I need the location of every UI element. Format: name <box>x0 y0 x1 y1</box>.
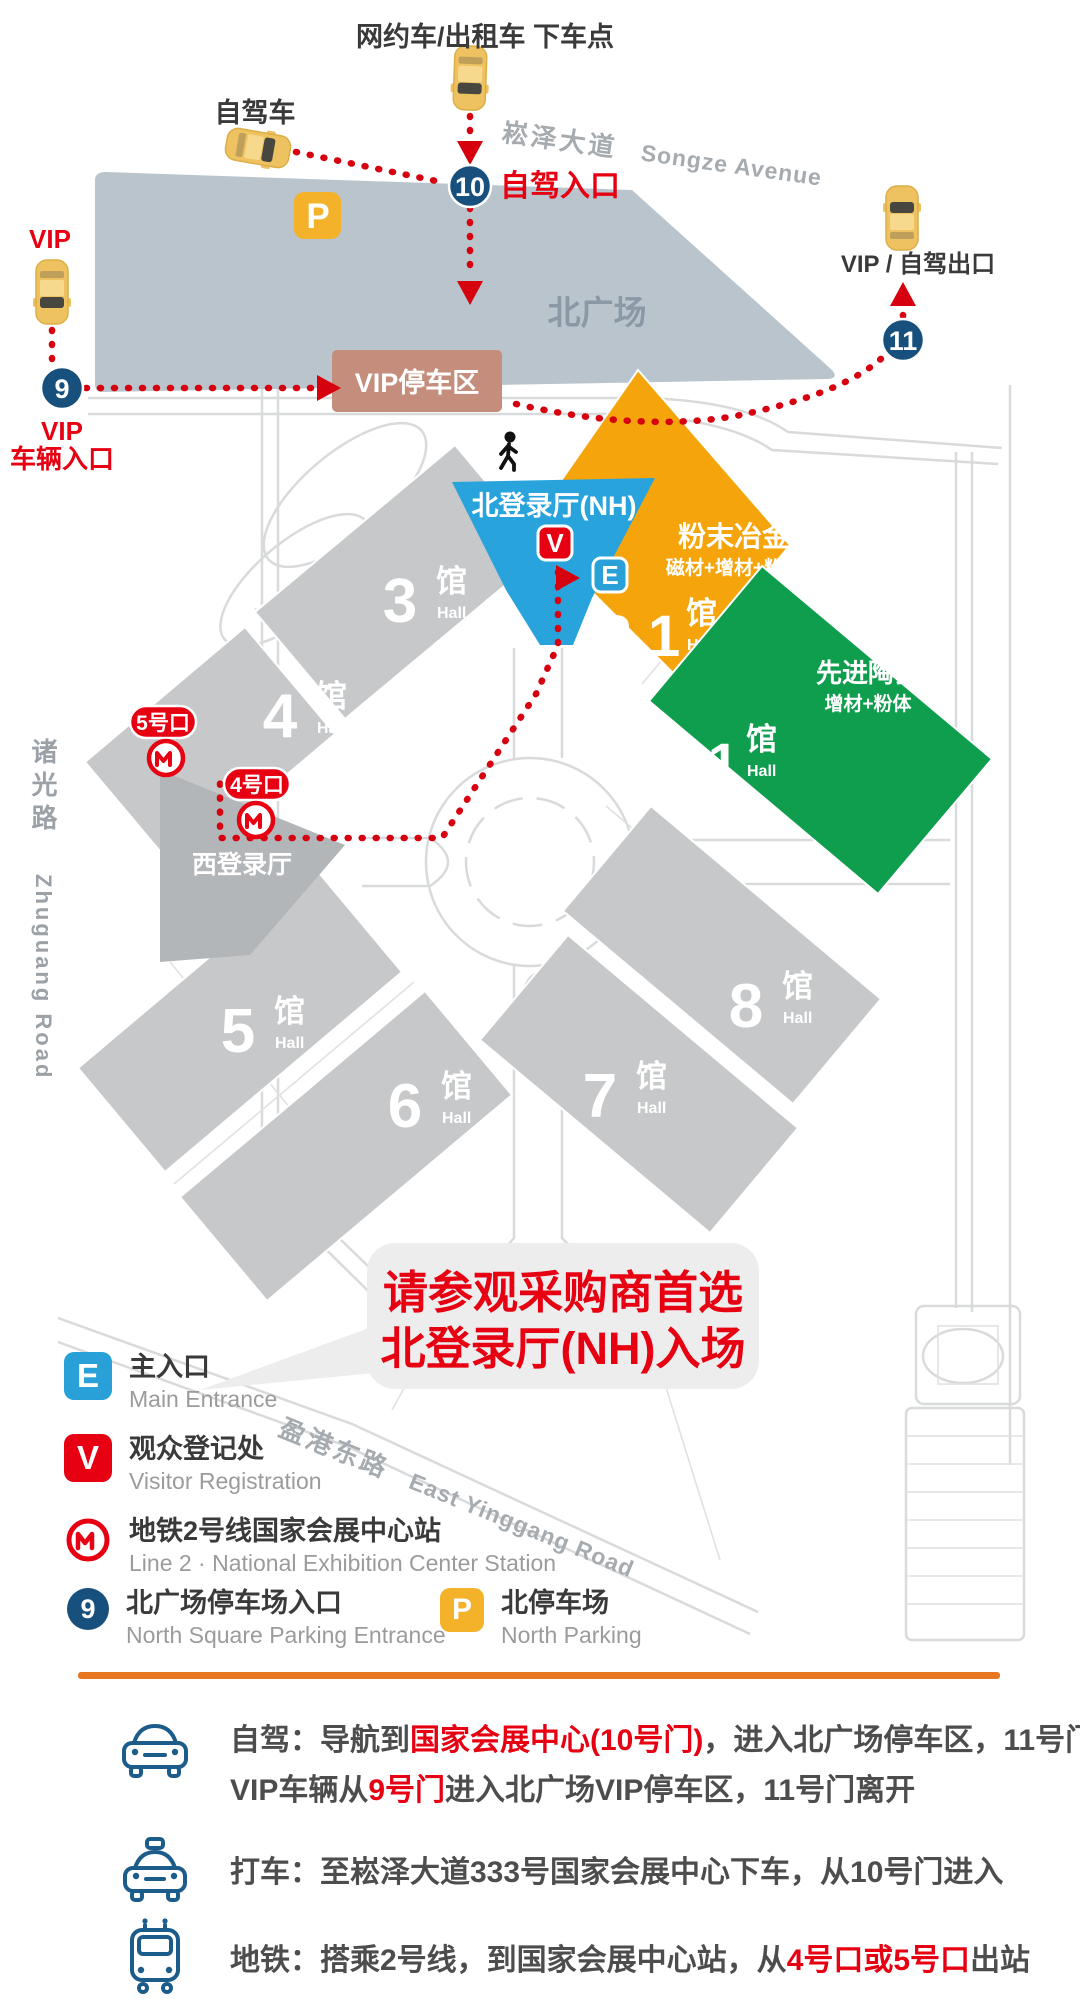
venue-traffic-map-page: { "colors": { "red": "#e60012", "navy": … <box>0 0 1080 1996</box>
legend-metro-cn: 地铁2号线国家会展中心站 <box>129 1516 556 1547</box>
gate-10-badge: 10 <box>449 165 491 207</box>
svg-text:Hall: Hall <box>437 605 466 622</box>
self-drive-car-icon <box>223 124 293 173</box>
svg-text:2.1: 2.1 <box>600 604 681 669</box>
zhuguang-road-cn: 诸光路 <box>28 738 58 837</box>
svg-text:增材+粉体: 增材+粉体 <box>824 692 912 715</box>
svg-text:馆: 馆 <box>436 564 467 599</box>
svg-text:Hall: Hall <box>783 1010 812 1027</box>
svg-text:Hall: Hall <box>275 1035 304 1052</box>
vip-entrance-label-line2: 车辆入口 <box>10 444 114 474</box>
main-entrance-marker: E <box>593 558 627 592</box>
driving-directions: 自驾：导航到国家会展中心(10号门)，进入北广场停车区，11号门离开VIP车辆从… <box>230 1716 1030 1816</box>
svg-text:Hall: Hall <box>637 1100 666 1117</box>
svg-text:馆: 馆 <box>441 1069 472 1104</box>
svg-text:5号口: 5号口 <box>136 712 190 735</box>
svg-text:8: 8 <box>729 972 763 1041</box>
svg-text:4: 4 <box>263 682 298 751</box>
svg-text:北登录厅(NH): 北登录厅(NH) <box>472 491 637 521</box>
self-drive-entrance-label: 自驾入口 <box>500 170 620 203</box>
svg-text:先进陶瓷: 先进陶瓷 <box>816 658 920 688</box>
svg-text:请参观采购商首选: 请参观采购商首选 <box>383 1267 743 1318</box>
legend-gate9-parking-entrance: 9 北广场停车场入口 North Square Parking Entrance <box>64 1588 446 1650</box>
vip-parking-zone: VIP停车区 <box>332 350 502 412</box>
section-divider <box>78 1672 1000 1679</box>
main-entrance-icon: E <box>64 1352 112 1400</box>
legend-main-entrance-cn: 主入口 <box>129 1352 277 1383</box>
legend-main-entrance-en: Main Entrance <box>129 1386 277 1414</box>
svg-text:10: 10 <box>455 172 485 202</box>
legend-gate9-cn: 北广场停车场入口 <box>126 1588 446 1619</box>
svg-text:磁材+增材+粉体: 磁材+增材+粉体 <box>666 556 803 579</box>
svg-text:馆: 馆 <box>746 722 777 757</box>
dropoff-label: 网约车/出租车 下车点 <box>356 21 614 52</box>
legend-metro-en: Line 2 · National Exhibition Center Stat… <box>129 1550 556 1578</box>
legend-gate9-en: North Square Parking Entrance <box>126 1622 446 1650</box>
svg-text:Hall: Hall <box>317 720 346 737</box>
taxi-directions: 打车：至崧泽大道333号国家会展中心下车，从10号门进入 <box>230 1848 1030 1898</box>
svg-text:馆: 馆 <box>316 679 347 714</box>
svg-text:P: P <box>306 197 329 236</box>
self-drive-label: 自驾车 <box>215 97 296 128</box>
svg-text:Hall: Hall <box>442 1110 471 1127</box>
parking-icon: P <box>440 1588 484 1632</box>
legend-main-entrance: E 主入口 Main Entrance <box>64 1352 277 1414</box>
legend-parking-en: North Parking <box>501 1622 642 1650</box>
gate-9-badge: 9 <box>41 367 83 409</box>
car-icon <box>110 1712 200 1789</box>
exit-car-icon <box>883 186 921 250</box>
svg-text:馆: 馆 <box>636 1059 667 1094</box>
svg-text:馆: 馆 <box>274 994 305 1029</box>
legend-visitor-registration-en: Visitor Registration <box>129 1468 322 1496</box>
vip-exit-label: VIP / 自驾出口 <box>841 250 995 278</box>
legend-parking-cn: 北停车场 <box>501 1588 642 1619</box>
visitor-registration-marker: V <box>538 526 572 560</box>
gate-11-badge: 11 <box>882 319 924 361</box>
vip-label: VIP <box>29 224 71 254</box>
taxi-dropoff-car-icon <box>450 45 490 110</box>
legend-north-parking: P 北停车场 North Parking <box>440 1588 642 1650</box>
svg-text:5: 5 <box>221 997 255 1066</box>
visitor-registration-icon: V <box>64 1434 112 1482</box>
svg-text:4号口: 4号口 <box>230 774 284 797</box>
legend-visitor-registration-cn: 观众登记处 <box>129 1434 322 1465</box>
north-parking-icon: P <box>294 192 341 239</box>
svg-text:V: V <box>546 528 564 558</box>
svg-text:Hall: Hall <box>747 763 776 780</box>
svg-text:6: 6 <box>388 1072 422 1141</box>
svg-text:9: 9 <box>54 374 69 404</box>
svg-text:3: 3 <box>383 567 417 636</box>
metro-directions: 地铁：搭乘2号线，到国家会展中心站，从4号口或5号口出站 <box>230 1936 1030 1986</box>
svg-text:11: 11 <box>889 326 918 356</box>
metro-icon <box>110 1916 200 2001</box>
legend-visitor-registration: V 观众登记处 Visitor Registration <box>64 1434 322 1496</box>
svg-text:粉末冶金: 粉末冶金 <box>678 520 791 552</box>
svg-text:北登录厅(NH)入场: 北登录厅(NH)入场 <box>381 1323 746 1374</box>
zhuguang-road-label: 诸光路 Zhuguang Road <box>30 738 56 1081</box>
gate9-icon: 9 <box>67 1588 109 1630</box>
legend-metro-station: 地铁2号线国家会展中心站 Line 2 · National Exhibitio… <box>64 1516 556 1578</box>
zhuguang-road-en: Zhuguang Road <box>31 874 56 1080</box>
vip-entrance-label-line1: VIP <box>41 416 83 446</box>
svg-text:7: 7 <box>583 1062 617 1131</box>
pedestrian-icon <box>501 432 516 471</box>
svg-text:馆: 馆 <box>782 969 813 1004</box>
svg-text:西登录厅: 西登录厅 <box>192 850 292 879</box>
svg-text:1.1: 1.1 <box>661 731 739 794</box>
svg-text:VIP停车区: VIP停车区 <box>355 367 480 398</box>
vip-car-icon <box>33 260 71 324</box>
svg-text:E: E <box>601 560 618 590</box>
north-square-label: 北广场 <box>548 294 647 331</box>
metro-station-icon <box>64 1516 112 1564</box>
taxi-icon <box>110 1836 200 1913</box>
